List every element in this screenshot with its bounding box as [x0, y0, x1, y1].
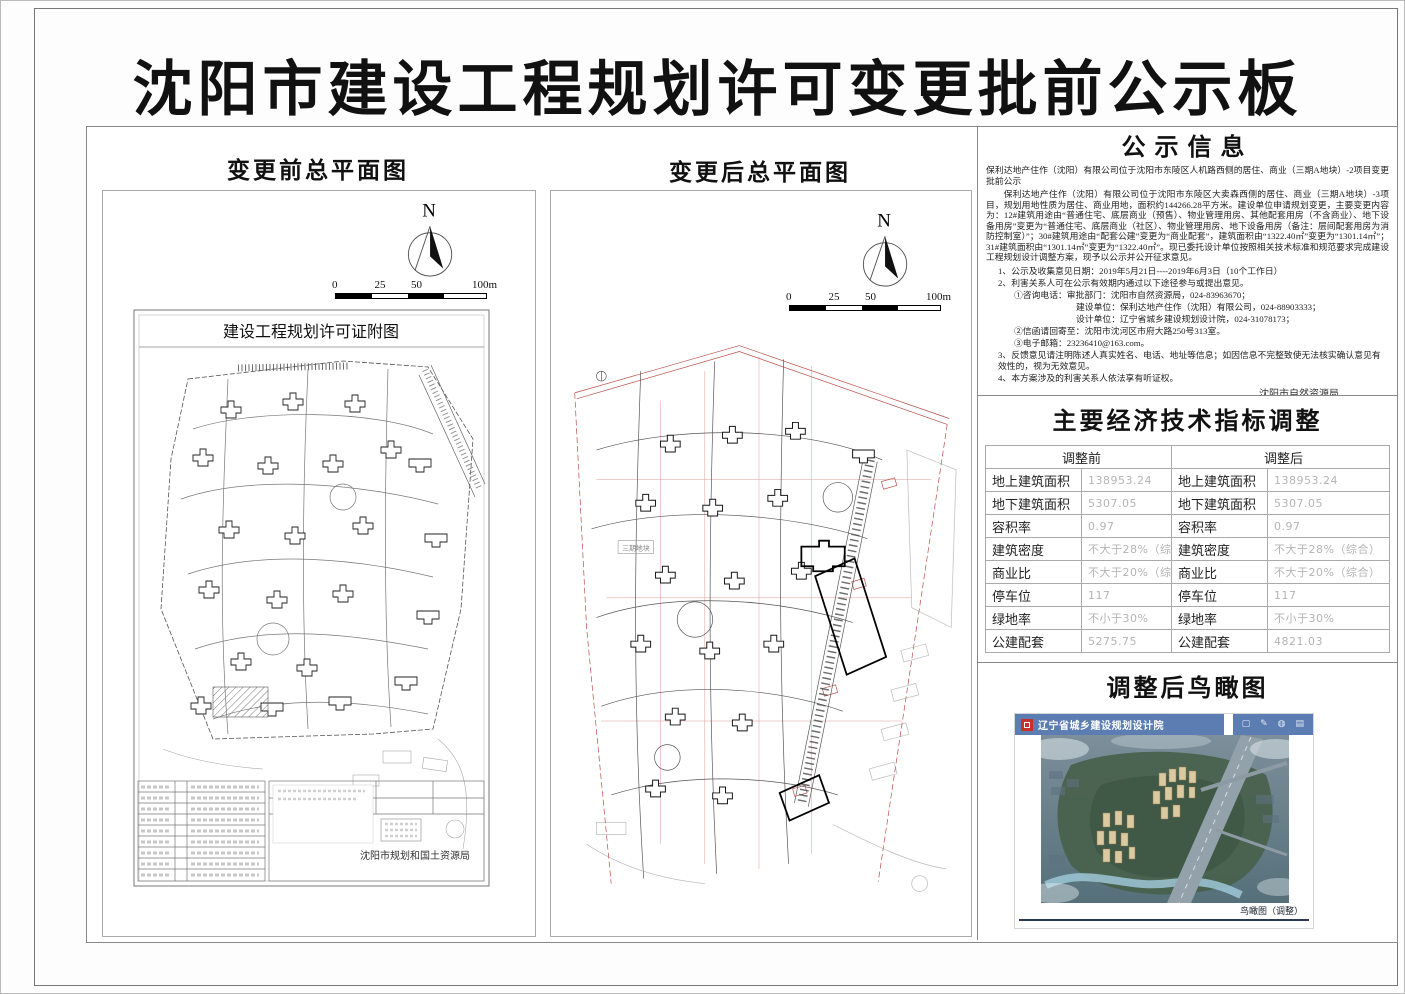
notice-item: 3、反馈意见请注明陈述人真实姓名、电话、地址等信息；如因信息不完整致使无法核实确…	[986, 350, 1389, 372]
table-row: 绿地率 不小于30% 绿地率 不小于30%	[986, 607, 1390, 630]
north-label: N	[877, 211, 891, 232]
table-row: 建筑密度 不大于28%（综合） 建筑密度 不大于28%（综合）	[986, 538, 1390, 561]
viewer-toolbar-icon-2: ✎	[1260, 720, 1268, 729]
scale-bar-rule	[335, 293, 487, 299]
north-arrow-icon: N	[853, 207, 919, 303]
scale-tick: 100m	[472, 279, 497, 291]
indicator-value-after: 不大于20%（综合）	[1268, 561, 1390, 584]
table-row: 地上建筑面积 138953.24 地上建筑面积 138953.24	[986, 469, 1390, 492]
table-row: 公建配套 5275.75 公建配套 4821.03	[986, 630, 1390, 653]
notice-item: ③电子邮箱：23236410@163.com。	[986, 338, 1389, 349]
indicator-value-after: 4821.03	[1268, 630, 1390, 653]
viewer-toolbar: ▢ ✎ ◍ ▤	[1233, 714, 1313, 735]
scale-tick: 50	[865, 291, 876, 303]
indicator-value-after: 5307.05	[1268, 492, 1390, 515]
birdseye-viewer: 辽宁省城乡建设规划设计院 ▢ ✎ ◍ ▤	[1014, 713, 1314, 929]
indicator-label: 公建配套	[1172, 630, 1268, 653]
after-plan-heading: 变更后总平面图	[550, 153, 970, 187]
notice-item: 设计单位：辽宁省城乡建设规划设计院，024-31078173；	[986, 314, 1389, 325]
indicator-value-before: 138953.24	[1082, 469, 1172, 492]
indicator-label: 地下建筑面积	[1172, 492, 1268, 515]
design-institute-logo	[1021, 719, 1033, 731]
viewer-toolbar-icon-1: ▢	[1242, 720, 1251, 729]
viewer-header: 辽宁省城乡建设规划设计院 ▢ ✎ ◍ ▤	[1015, 714, 1313, 735]
indicator-value-before: 5307.05	[1082, 492, 1172, 515]
scale-tick: 50	[411, 279, 422, 291]
indicator-value-before: 不大于28%（综合）	[1082, 538, 1172, 561]
after-plan-drawing: 三期地块	[557, 329, 961, 911]
drawing-title: 建设工程规划许可证附图	[223, 323, 399, 341]
indicator-label: 容积率	[986, 515, 1082, 538]
viewer-titlebar: 辽宁省城乡建设规划设计院	[1015, 714, 1224, 735]
signature-agency: 沈阳市自然资源局	[978, 388, 1339, 397]
indicator-value-after: 138953.24	[1268, 469, 1390, 492]
viewer-title-text: 辽宁省城乡建设规划设计院	[1038, 717, 1164, 732]
indicator-label: 公建配套	[986, 630, 1082, 653]
viewer-toolbar-icon-4: ▤	[1295, 720, 1304, 729]
content-frame: 变更前总平面图 N 0 25 50 100m 建设工程规划许	[86, 126, 1398, 943]
indicators-table: 调整前 调整后 地上建筑面积 138953.24 地上建筑面积 138953.2…	[985, 445, 1390, 653]
scale-tick: 0	[332, 279, 338, 291]
indicator-label: 商业比	[986, 561, 1082, 584]
indicator-value-after: 不大于28%（综合）	[1268, 538, 1390, 561]
notice-board-page: { "page_title": "沈阳市建设工程规划许可变更批前公示板", "c…	[0, 0, 1405, 994]
indicator-value-before: 不大于20%（综合）	[1082, 561, 1172, 584]
before-plan-heading: 变更前总平面图	[102, 151, 534, 185]
scale-tick: 25	[829, 291, 840, 303]
viewer-toolbar-icon-3: ◍	[1278, 720, 1286, 729]
indicator-value-before: 5275.75	[1082, 630, 1172, 653]
viewer-footer-line	[1019, 919, 1309, 921]
indicator-value-before: 117	[1082, 584, 1172, 607]
scale-bar: 0 25 50 100m	[335, 279, 487, 301]
birdseye-title: 调整后鸟瞰图	[978, 675, 1397, 703]
birdseye-section: 调整后鸟瞰图 辽宁省城乡建设规划设计院 ▢ ✎ ◍ ▤	[978, 663, 1397, 940]
table-row: 容积率 0.97 容积率 0.97	[986, 515, 1390, 538]
notice-item: ①咨询电话：审批部门：沈阳市自然资源局，024-83963670；	[986, 290, 1389, 301]
notice-item: 4、本方案涉及的利害关系人依法享有听证权。	[986, 373, 1389, 384]
scale-tick: 100m	[926, 291, 951, 303]
before-plan-panel: N 0 25 50 100m 建设工程规划许可证附图	[102, 190, 536, 937]
indicator-label: 绿地率	[1172, 607, 1268, 630]
indicator-value-after: 117	[1268, 584, 1390, 607]
indicator-value-after: 不小于30%	[1268, 607, 1390, 630]
notice-item: ②信函请回寄至：沈阳市沈河区市府大路250号313室。	[986, 326, 1389, 337]
indicator-value-before: 0.97	[1082, 515, 1172, 538]
north-label: N	[422, 201, 436, 222]
indicators-section: 主要经济技术指标调整 调整前 调整后 地上建筑面积 138953.24 地上建筑…	[978, 396, 1397, 663]
agency-stamp-text: 沈阳市规划和国土资源局	[360, 849, 470, 862]
parcel-label: 三期地块	[622, 544, 650, 553]
header-after: 调整后	[1172, 446, 1390, 469]
indicator-label: 绿地率	[986, 607, 1082, 630]
scale-tick: 25	[375, 279, 386, 291]
indicator-label: 停车位	[1172, 584, 1268, 607]
notice-item: 2、利害关系人可在公示有效期内通过以下途径参与或提出意见。	[986, 278, 1389, 289]
indicator-value-after: 0.97	[1268, 515, 1390, 538]
indicator-label: 地上建筑面积	[986, 469, 1082, 492]
notice-section: 公示信息 保利达地产住作（沈阳）有限公司位于沈阳市东陵区人机路西侧的居住、商业（…	[978, 127, 1397, 396]
render-caption: 鸟瞰图（调整）	[1240, 904, 1303, 917]
indicator-label: 地上建筑面积	[1172, 469, 1268, 492]
aerial-rendering	[1041, 735, 1289, 903]
table-row: 地下建筑面积 5307.05 地下建筑面积 5307.05	[986, 492, 1390, 515]
signature-block: 沈阳市自然资源局 2019年5月21日	[978, 388, 1397, 397]
header-before: 调整前	[986, 446, 1172, 469]
notice-item: 1、公示及收集意见日期：2019年5月21日----2019年6月3日（10个工…	[986, 266, 1389, 277]
indicator-label: 地下建筑面积	[986, 492, 1082, 515]
table-row: 停车位 117 停车位 117	[986, 584, 1390, 607]
notice-item: 建设单位：保利达地产住作（沈阳）有限公司，024-88903333；	[986, 302, 1389, 313]
notice-intro: 保利达地产住作（沈阳）有限公司位于沈阳市东陵区人机路西侧的居住、商业（三期A地块…	[986, 165, 1389, 186]
indicator-label: 停车位	[986, 584, 1082, 607]
notice-title: 公示信息	[978, 135, 1397, 161]
indicator-label: 商业比	[1172, 561, 1268, 584]
indicators-title: 主要经济技术指标调整	[978, 408, 1397, 436]
info-panel: 公示信息 保利达地产住作（沈阳）有限公司位于沈阳市东陵区人机路西侧的居住、商业（…	[977, 127, 1397, 940]
after-plan-panel: N 0 25 50 100m	[550, 190, 972, 937]
page-title: 沈阳市建设工程规划许可变更批前公示板	[61, 41, 1374, 128]
notice-body: 保利达地产住作（沈阳）有限公司位于沈阳市东陵区大卖森西侧的居住、商业（三期A地块…	[986, 189, 1389, 263]
before-plan-drawing: 建设工程规划许可证附图	[133, 309, 490, 887]
indicator-label: 建筑密度	[1172, 538, 1268, 561]
notice-item-list: 1、公示及收集意见日期：2019年5月21日----2019年6月3日（10个工…	[986, 266, 1389, 384]
scale-tick: 0	[786, 291, 792, 303]
indicator-label: 容积率	[1172, 515, 1268, 538]
indicator-label: 建筑密度	[986, 538, 1082, 561]
scale-bar-rule	[789, 305, 941, 311]
indicator-value-before: 不小于30%	[1082, 607, 1172, 630]
table-row: 商业比 不大于20%（综合） 商业比 不大于20%（综合）	[986, 561, 1390, 584]
scale-bar: 0 25 50 100m	[789, 291, 941, 313]
table-header-row: 调整前 调整后	[986, 446, 1390, 469]
